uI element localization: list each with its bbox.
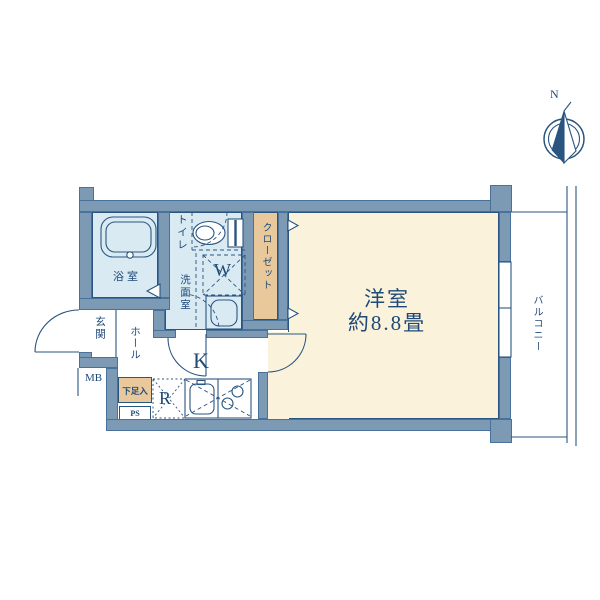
bathroom-label: 浴室 bbox=[113, 268, 141, 284]
toilet-icon bbox=[193, 219, 243, 247]
compass-icon bbox=[544, 102, 584, 163]
floorplan-canvas: 浴室 トイレ 洗面室 W クローゼット 玄関 ホール MB 下足入 PS R K… bbox=[0, 0, 600, 600]
meter-box-label: MB bbox=[85, 372, 102, 384]
main-room-label: 洋室 約8.8畳 bbox=[297, 287, 477, 335]
compass-north-label: N bbox=[550, 87, 559, 102]
toilet-label: トイレ bbox=[174, 214, 189, 252]
main-room-size: 約8.8畳 bbox=[297, 311, 477, 335]
bathtub-icon bbox=[101, 217, 156, 258]
refrigerator-space-label: R bbox=[159, 388, 171, 409]
main-room-name: 洋室 bbox=[297, 287, 477, 311]
hall-label: ホール bbox=[127, 326, 142, 361]
closet-label: クローゼット bbox=[258, 222, 273, 291]
window-icon bbox=[499, 262, 511, 357]
kitchen-counter-icon bbox=[185, 379, 251, 418]
balcony-label: バルコニー bbox=[529, 295, 544, 353]
washer-space-label: W bbox=[214, 260, 231, 281]
entrance-door-icon bbox=[35, 310, 79, 352]
pipe-shaft-label: PS bbox=[119, 409, 151, 418]
washing-machine-icon bbox=[206, 296, 242, 329]
bath-door-arrow-icon bbox=[147, 284, 160, 298]
kitchen-label: K bbox=[193, 348, 209, 374]
entrance-label: 玄関 bbox=[92, 316, 107, 341]
washroom-label: 洗面室 bbox=[177, 274, 192, 312]
main-room-door-icon bbox=[268, 334, 306, 372]
shoe-cabinet-label: 下足入 bbox=[118, 385, 152, 397]
